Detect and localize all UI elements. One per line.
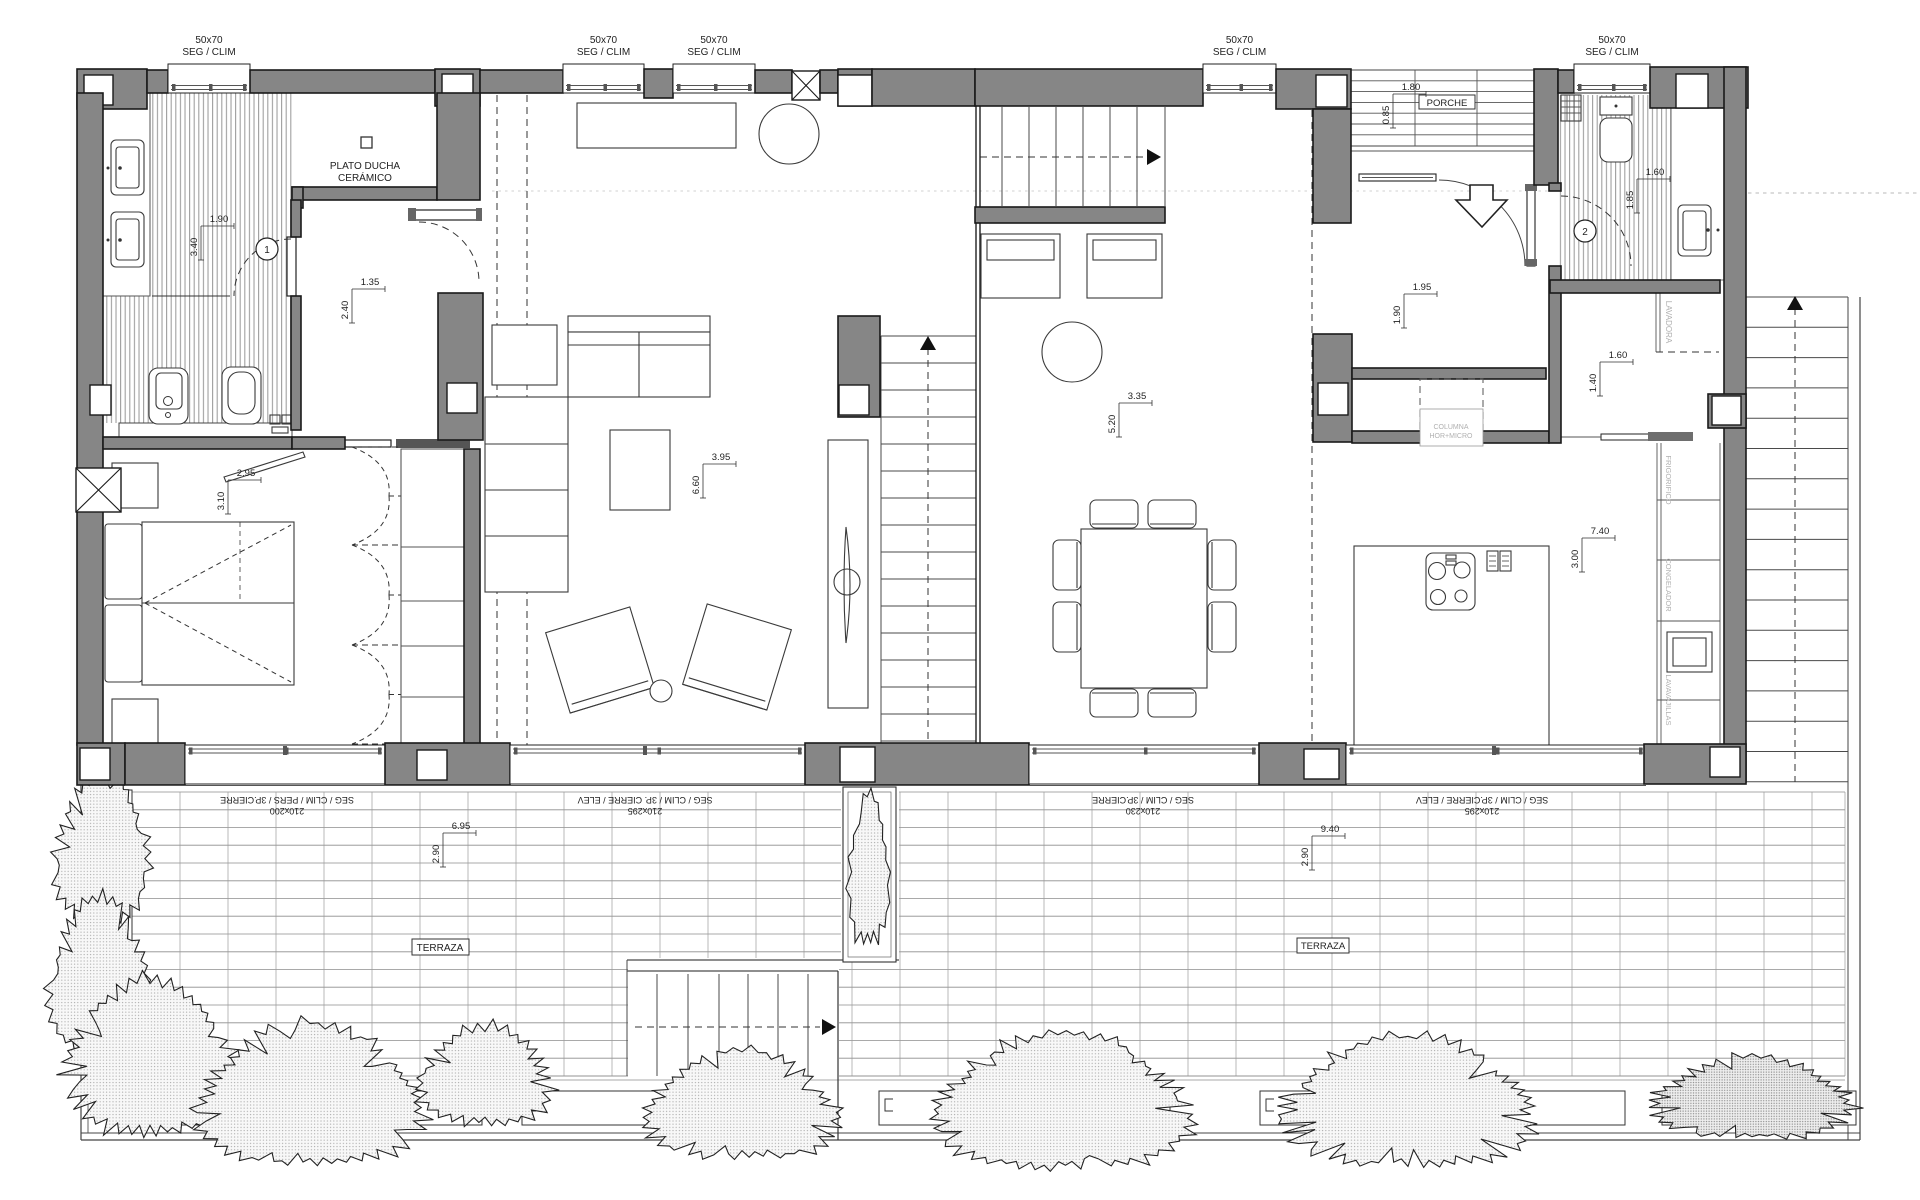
svg-text:3.95: 3.95 xyxy=(712,452,731,463)
svg-text:3.40: 3.40 xyxy=(189,238,200,257)
svg-text:SEG / CLIM / PERS / 3P.CIERRE: SEG / CLIM / PERS / 3P.CIERRE xyxy=(220,795,354,805)
svg-text:3.00: 3.00 xyxy=(1570,550,1581,569)
svg-text:2.95: 2.95 xyxy=(237,468,256,479)
svg-text:210x295: 210x295 xyxy=(628,806,663,816)
svg-text:LAVADORA: LAVADORA xyxy=(1664,301,1673,344)
svg-text:2.90: 2.90 xyxy=(431,845,442,864)
svg-text:50x70: 50x70 xyxy=(1598,35,1626,46)
svg-text:1.90: 1.90 xyxy=(1392,306,1403,325)
svg-text:CERÁMICO: CERÁMICO xyxy=(338,171,392,184)
svg-text:PORCHE: PORCHE xyxy=(1427,98,1468,109)
svg-text:SEG / CLIM: SEG / CLIM xyxy=(1585,47,1638,58)
svg-text:COLUMNA: COLUMNA xyxy=(1433,424,1468,431)
svg-text:SEG / CLIM / 3P. CIERRE / ELEV: SEG / CLIM / 3P. CIERRE / ELEV xyxy=(578,795,713,805)
svg-text:5.20: 5.20 xyxy=(1107,415,1118,434)
svg-text:3.35: 3.35 xyxy=(1128,391,1147,402)
svg-text:7.40: 7.40 xyxy=(1591,526,1610,537)
svg-text:SEG / CLIM: SEG / CLIM xyxy=(687,47,740,58)
svg-text:SEG / CLIM: SEG / CLIM xyxy=(577,47,630,58)
svg-text:1.80: 1.80 xyxy=(1402,82,1421,93)
svg-text:2: 2 xyxy=(1582,227,1588,238)
svg-text:LAVAVAJILLAS: LAVAVAJILLAS xyxy=(1664,674,1673,725)
svg-text:9.40: 9.40 xyxy=(1321,824,1340,835)
svg-text:210x200: 210x200 xyxy=(270,806,305,816)
svg-text:6.95: 6.95 xyxy=(452,821,471,832)
svg-text:1.90: 1.90 xyxy=(210,214,229,225)
svg-text:6.60: 6.60 xyxy=(691,476,702,495)
svg-text:TERRAZA: TERRAZA xyxy=(1301,941,1346,952)
svg-text:TERRAZA: TERRAZA xyxy=(417,943,464,954)
svg-text:FRIGORIFICO: FRIGORIFICO xyxy=(1664,455,1673,504)
svg-text:50x70: 50x70 xyxy=(700,35,728,46)
svg-text:SEG / CLIM: SEG / CLIM xyxy=(182,47,235,58)
svg-text:50x70: 50x70 xyxy=(195,35,223,46)
svg-text:2.40: 2.40 xyxy=(340,301,351,320)
svg-text:1: 1 xyxy=(264,245,270,256)
svg-text:50x70: 50x70 xyxy=(590,35,618,46)
svg-text:CONGELADOR: CONGELADOR xyxy=(1664,558,1673,612)
svg-text:1.85: 1.85 xyxy=(1625,191,1636,210)
svg-text:HOR+MICRO: HOR+MICRO xyxy=(1430,433,1474,440)
svg-text:1.60: 1.60 xyxy=(1609,350,1628,361)
svg-text:50x70: 50x70 xyxy=(1226,35,1254,46)
svg-text:210x295: 210x295 xyxy=(1465,806,1500,816)
svg-text:SEG / CLIM: SEG / CLIM xyxy=(1213,47,1266,58)
svg-text:1.60: 1.60 xyxy=(1646,167,1665,178)
svg-text:1.40: 1.40 xyxy=(1588,374,1599,393)
svg-text:2.90: 2.90 xyxy=(1300,848,1311,867)
svg-text:1.35: 1.35 xyxy=(361,277,380,288)
svg-text:0.85: 0.85 xyxy=(1381,106,1392,125)
svg-text:3.10: 3.10 xyxy=(216,492,227,511)
svg-text:SEG / CLIM / 3P.CIERRE / ELEV: SEG / CLIM / 3P.CIERRE / ELEV xyxy=(1416,795,1548,805)
svg-text:1.95: 1.95 xyxy=(1413,282,1432,293)
svg-text:210x230: 210x230 xyxy=(1126,806,1161,816)
svg-text:PLATO DUCHA: PLATO DUCHA xyxy=(330,161,401,172)
svg-text:SEG / CLIM / 3P.CIERRE: SEG / CLIM / 3P.CIERRE xyxy=(1092,795,1194,805)
